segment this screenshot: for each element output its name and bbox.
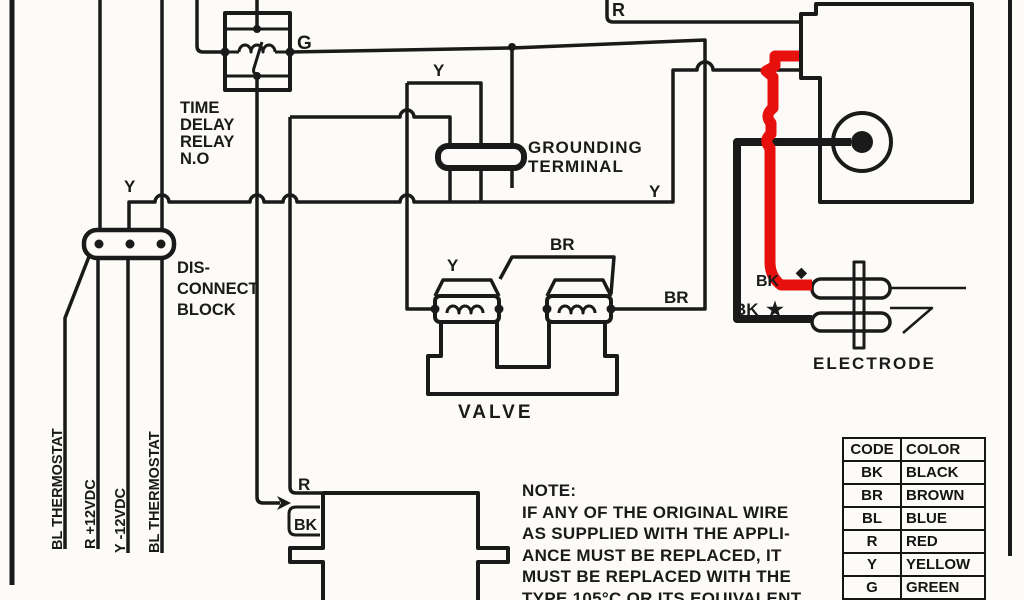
note-line: AS SUPPLIED WITH THE APPLI- — [522, 523, 872, 545]
label-grounding-2: TERMINAL — [528, 157, 624, 176]
valve-terminal-dot — [495, 305, 504, 314]
legend-header-color: COLOR — [901, 438, 985, 461]
legend-code: Y — [843, 553, 901, 576]
junction-dot — [253, 72, 261, 80]
terminal-center-dot — [851, 131, 873, 153]
label-br-top: BR — [550, 235, 575, 254]
disconnect-terminal-dot — [95, 240, 104, 249]
label-r-top: R — [612, 0, 625, 20]
electrode-terminal-lower — [812, 313, 890, 331]
legend-color: BROWN — [901, 484, 985, 507]
label-thermostat-3: Y -12VDC — [113, 487, 129, 553]
label-relay-1: TIME — [180, 99, 219, 117]
label-y-right: Y — [649, 182, 661, 201]
valve-coil-right — [547, 296, 611, 322]
highlighted-replacement-wire — [766, 56, 812, 285]
label-disconnect-3: BLOCK — [177, 301, 236, 319]
valve-terminal-dot — [607, 305, 616, 314]
label-disconnect-1: DIS- — [177, 259, 210, 277]
replacement-note: NOTE: IF ANY OF THE ORIGINAL WIRE AS SUP… — [522, 480, 872, 600]
grounding-terminal-bar — [438, 146, 524, 168]
legend-row: G GREEN — [843, 576, 985, 599]
wire-bk-to-box — [257, 76, 280, 503]
label-relay-2: DELAY — [180, 116, 234, 134]
junction-dot — [253, 25, 261, 33]
circuit-board-box — [801, 4, 972, 202]
legend-code: BR — [843, 484, 901, 507]
disconnect-terminal-dot — [157, 240, 166, 249]
label-grounding-1: GROUNDING — [528, 138, 643, 157]
label-disconnect-2: CONNECT — [177, 280, 259, 298]
legend-code: BK — [843, 461, 901, 484]
wire-ground-stubs-bottom — [450, 168, 512, 202]
legend-code: BL — [843, 507, 901, 530]
note-line: IF ANY OF THE ORIGINAL WIRE — [522, 502, 872, 524]
wire-r-to-box — [290, 117, 323, 493]
wire-relay-left — [197, 0, 225, 52]
legend-header-code: CODE — [843, 438, 901, 461]
label-valve: VALVE — [458, 402, 534, 423]
junction-dot — [286, 48, 295, 57]
diamond-icon: ◆ — [795, 264, 808, 280]
junction-dot — [508, 43, 516, 51]
valve-terminal-dot — [543, 305, 552, 314]
wire-r-top — [607, 0, 800, 22]
legend-row: R RED — [843, 530, 985, 553]
wire-labels: G R TIME DELAY RELAY N.O GROUNDING TERMI… — [50, 0, 936, 553]
legend-row: BR BROWN — [843, 484, 985, 507]
legend-color: YELLOW — [901, 553, 985, 576]
relay-coil — [225, 45, 290, 52]
label-relay-4: N.O — [180, 150, 210, 168]
valve-hat-left — [435, 280, 499, 296]
label-electrode: ELECTRODE — [813, 354, 936, 373]
note-line: MUST BE REPLACED WITH THE — [522, 566, 872, 588]
wiring-diagram: G R TIME DELAY RELAY N.O GROUNDING TERMI… — [0, 0, 1024, 600]
electrode-pin — [854, 262, 864, 348]
label-thermostat-1: BL THERMOSTAT — [50, 428, 66, 550]
valve-br-link — [500, 257, 614, 294]
label-thermostat-2: R +12VDC — [83, 479, 99, 549]
legend-color: RED — [901, 530, 985, 553]
junction-dots — [95, 25, 874, 510]
electrode-terminal-upper — [812, 279, 890, 298]
junction-dot — [221, 48, 230, 57]
label-bk-box: BK — [294, 517, 318, 534]
high-tension-lead — [737, 142, 851, 319]
label-y-valve: Y — [447, 256, 459, 275]
legend-row: BL BLUE — [843, 507, 985, 530]
label-y-block: Y — [124, 177, 136, 196]
legend-color: GREEN — [901, 576, 985, 599]
disconnect-terminal-dot — [126, 240, 135, 249]
label-relay-3: RELAY — [180, 133, 234, 151]
legend-color: BLUE — [901, 507, 985, 530]
wire-ground-stub-left — [290, 110, 450, 146]
legend-color: BLACK — [901, 461, 985, 484]
valve-hat-right — [547, 280, 611, 296]
legend-row: Y YELLOW — [843, 553, 985, 576]
valve-body — [428, 322, 617, 394]
label-y-bracket: Y — [433, 61, 445, 80]
label-thermostat-4: BL THERMOSTAT — [147, 431, 163, 553]
note-heading: NOTE: — [522, 480, 872, 502]
star-icon: ★ — [766, 299, 784, 321]
wire-g-br — [290, 40, 705, 309]
label-r-box: R — [298, 475, 310, 494]
label-bk-diamond: BK — [756, 273, 780, 290]
electrode-lead-lower — [890, 308, 932, 333]
control-box — [290, 493, 508, 600]
legend-row: BK BLACK — [843, 461, 985, 484]
valve-coil-left — [435, 296, 499, 322]
label-br-right: BR — [664, 288, 689, 307]
legend-code: R — [843, 530, 901, 553]
legend-code: G — [843, 576, 901, 599]
valve-terminal-dot — [431, 305, 440, 314]
label-g: G — [297, 33, 312, 54]
valve-coil-left-windings — [447, 306, 483, 313]
note-line: TYPE 105°C OR ITS EQUIVALENT — [522, 588, 872, 600]
valve-coil-right-windings — [559, 306, 595, 313]
note-line: ANCE MUST BE REPLACED, IT — [522, 545, 872, 567]
legend-header-row: CODE COLOR — [843, 438, 985, 461]
label-bk-star: BK — [734, 300, 759, 319]
wire-color-legend: CODE COLOR BK BLACK BR BROWN BL BLUE R R… — [842, 437, 986, 600]
